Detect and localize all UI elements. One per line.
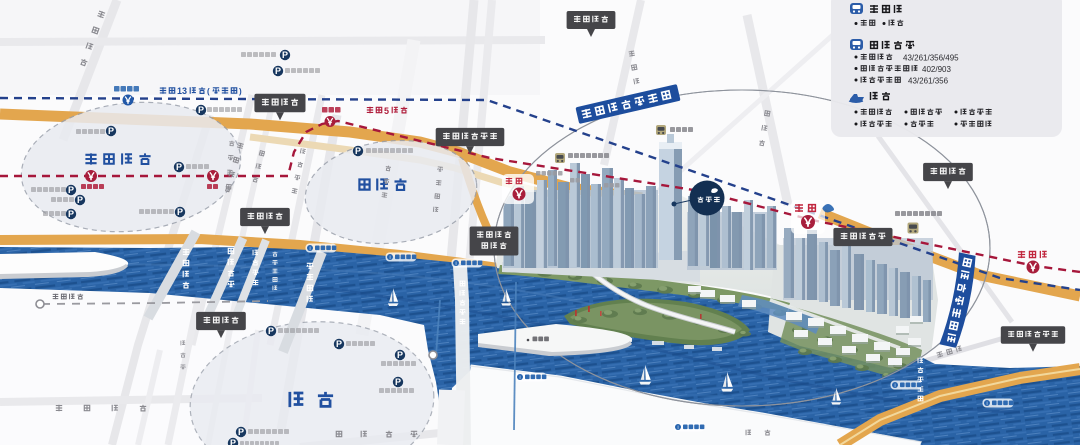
svg-text:P: P xyxy=(238,427,244,437)
svg-text:P: P xyxy=(77,195,83,205)
svg-text:): ) xyxy=(239,87,242,96)
svg-text:i: i xyxy=(519,375,520,381)
svg-text:i: i xyxy=(894,383,895,389)
svg-text:P: P xyxy=(355,146,361,156)
svg-text:P: P xyxy=(275,66,281,76)
svg-text:P: P xyxy=(268,326,274,336)
svg-text:i: i xyxy=(309,246,310,252)
svg-text:i: i xyxy=(677,425,678,431)
svg-text:43/261/356/495: 43/261/356/495 xyxy=(903,54,959,63)
svg-text:P: P xyxy=(68,209,74,219)
svg-text:P: P xyxy=(177,207,183,217)
svg-text:P: P xyxy=(176,162,182,172)
svg-text:5: 5 xyxy=(384,106,389,116)
svg-text:P: P xyxy=(395,377,401,387)
svg-text:P: P xyxy=(198,105,204,115)
svg-text:(: ( xyxy=(207,87,210,96)
svg-text:P: P xyxy=(68,185,74,195)
svg-text:P: P xyxy=(282,50,288,60)
svg-text:P: P xyxy=(336,339,342,349)
svg-text:P: P xyxy=(230,438,236,445)
svg-text:402/903: 402/903 xyxy=(922,65,951,74)
svg-text:i: i xyxy=(455,261,456,267)
svg-text:43/261/356: 43/261/356 xyxy=(908,77,949,86)
svg-text:P: P xyxy=(397,350,403,360)
svg-text:13: 13 xyxy=(177,86,187,96)
svg-text:i: i xyxy=(986,401,987,407)
svg-text:i: i xyxy=(389,255,390,261)
svg-text:P: P xyxy=(108,126,114,136)
